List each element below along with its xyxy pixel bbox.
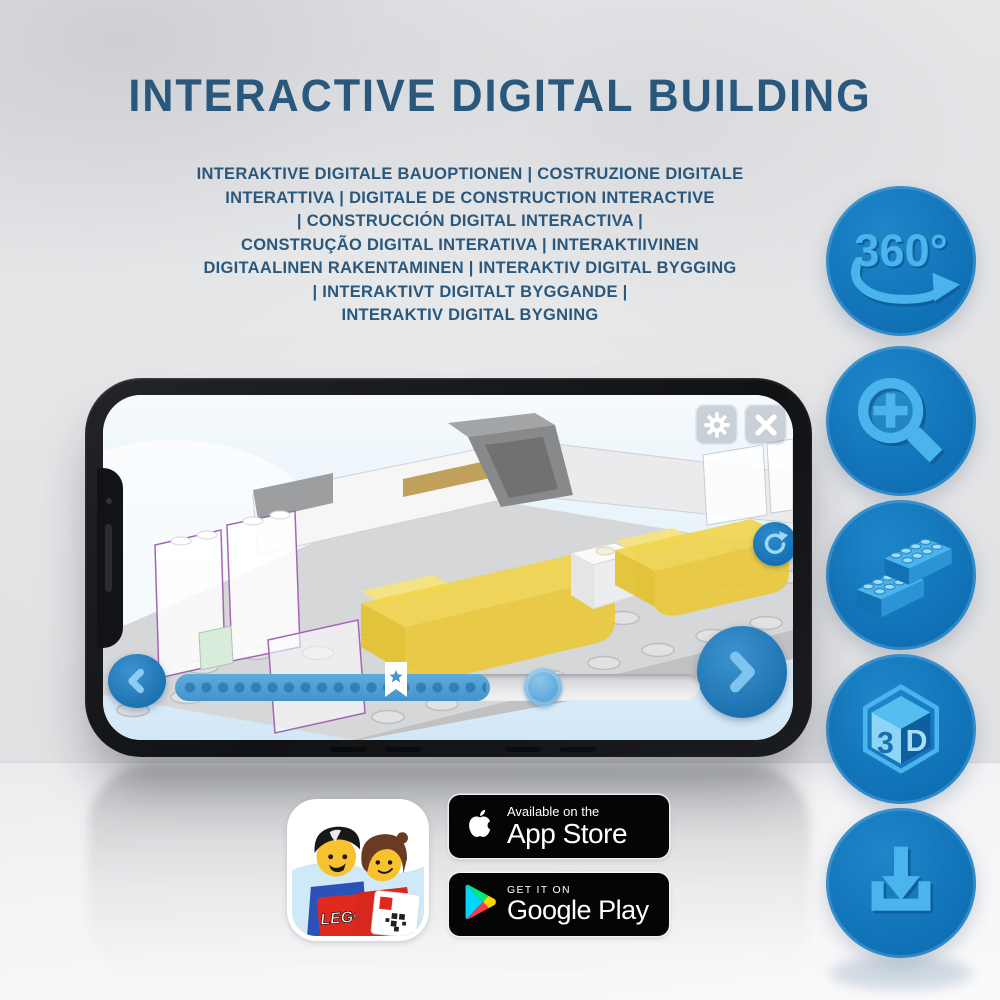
bookmark-star-icon [385, 662, 407, 698]
apple-icon [463, 804, 497, 849]
google-play-name: Google Play [507, 896, 649, 924]
front-camera [106, 498, 112, 504]
chevron-right-icon [723, 649, 761, 695]
earpiece-speaker [105, 524, 112, 592]
phone-reflection [88, 766, 810, 976]
google-play-icon [463, 883, 497, 926]
subtitle-line: DIGITAALINEN RAKENTAMINEN | INTERAKTIV D… [111, 256, 829, 280]
chevron-left-icon [124, 666, 150, 696]
progress-fill [175, 674, 490, 701]
progress-step-dots [182, 674, 486, 701]
lego-product-marketing-image: INTERACTIVE DIGITAL BUILDING INTERAKTIVE… [0, 0, 1000, 1000]
svg-text:360°: 360° [854, 225, 948, 276]
svg-text:3: 3 [877, 727, 894, 760]
subtitle-line: INTERATTIVA | DIGITALE DE CONSTRUCTION I… [111, 186, 829, 210]
brick-stack-icon [847, 521, 955, 629]
circle-reflection [830, 956, 972, 990]
download-icon [849, 831, 953, 935]
360-rotation-icon: 360° 360° [842, 202, 960, 320]
close-icon [752, 411, 780, 439]
feature-circle-download [826, 808, 976, 958]
multilingual-subtitle: INTERAKTIVE DIGITALE BAUOPTIONEN | COSTR… [111, 162, 829, 327]
progress-slider-knob[interactable] [524, 668, 562, 706]
lego-app-icon[interactable]: LEGO [287, 799, 429, 941]
feature-circle-zoom [826, 346, 976, 496]
app-store-tagline: Available on the [507, 805, 627, 819]
subtitle-line: | INTERAKTIVT DIGITALT BYGGANDE | [111, 280, 829, 304]
subtitle-line: CONSTRUÇÃO DIGITAL INTERATIVA | INTERAKT… [111, 233, 829, 257]
speaker-port [385, 747, 421, 752]
app-screen [103, 395, 793, 740]
subtitle-line: INTERAKTIV DIGITAL BYGNING [111, 303, 829, 327]
close-button[interactable] [744, 404, 787, 445]
app-store-badge[interactable]: Available on the App Store [449, 795, 669, 858]
next-step-button[interactable] [697, 626, 787, 718]
speaker-port [560, 747, 596, 752]
3d-cube-icon: 3 D [846, 674, 956, 784]
rotate-icon [760, 529, 790, 559]
feature-circle-3d: 3 D [826, 654, 976, 804]
subtitle-line: INTERAKTIVE DIGITALE BAUOPTIONEN | COSTR… [111, 162, 829, 186]
feature-circle-bricks [826, 500, 976, 650]
previous-step-button[interactable] [108, 654, 166, 708]
page-title: INTERACTIVE DIGITAL BUILDING [20, 70, 980, 122]
speaker-port [330, 747, 366, 752]
build-progress-slider[interactable] [175, 674, 700, 701]
bookmark-marker [385, 662, 407, 698]
settings-button[interactable] [695, 404, 738, 445]
zoom-in-icon [849, 369, 953, 473]
app-store-name: App Store [507, 819, 627, 848]
gear-icon [702, 410, 732, 440]
rotate-model-button[interactable] [753, 522, 793, 566]
feature-circle-360: 360° 360° [826, 186, 976, 336]
subtitle-line: | CONSTRUCCIÓN DIGITAL INTERACTIVA | [111, 209, 829, 233]
google-play-badge[interactable]: GET IT ON Google Play [449, 873, 669, 936]
speaker-port [505, 747, 541, 752]
smartphone [85, 378, 812, 757]
svg-text:D: D [906, 725, 928, 758]
phone-notch [97, 468, 123, 648]
